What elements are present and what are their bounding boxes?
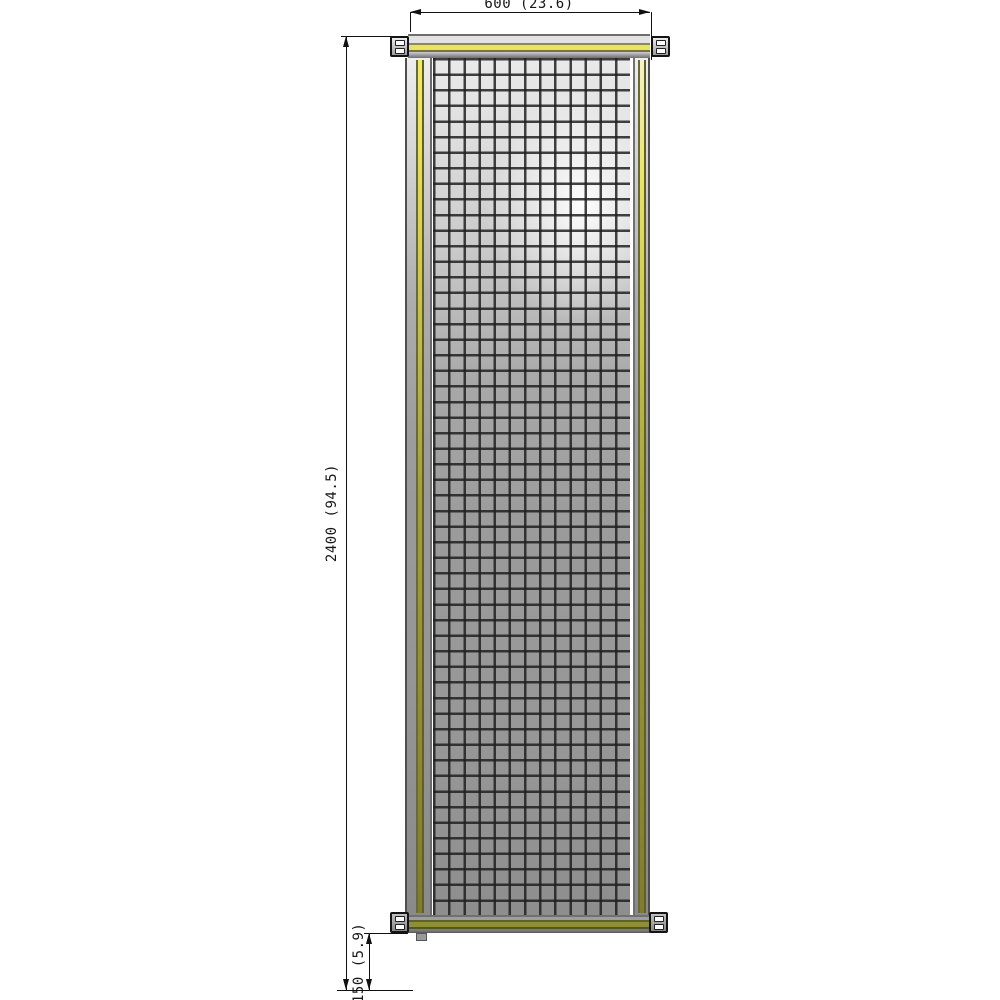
dim-height-arrow-bottom — [343, 979, 349, 990]
left-upright-yellow-stripe — [416, 60, 424, 913]
bracket-hole — [395, 924, 405, 930]
bottom-rail-yellow-stripe — [408, 920, 650, 929]
bracket-hole — [654, 924, 664, 930]
dim-width-extension-left — [410, 12, 411, 32]
top-rail-yellow-stripe — [408, 43, 650, 52]
panel-bottom-rail — [408, 915, 650, 933]
mounting-bracket-bottom-left — [390, 912, 409, 933]
dim-width-extension-right — [651, 12, 652, 60]
dim-clearance-arrow-bottom — [366, 979, 372, 990]
mounting-bracket-top-right — [651, 36, 670, 57]
technical-drawing-canvas: 600 (23.6) 2400 (94.5) 150 (5.9) — [0, 0, 1000, 1000]
dim-height-arrow-top — [343, 36, 349, 47]
dim-width-label: 600 (23.6) — [474, 0, 584, 11]
dim-clearance-label: 150 (5.9) — [351, 923, 367, 1000]
bracket-hole — [395, 40, 405, 46]
bracket-hole — [395, 48, 405, 54]
mounting-bracket-top-left — [390, 36, 409, 57]
dim-height-line — [346, 36, 347, 990]
panel-left-upright — [405, 58, 432, 915]
dim-width-line — [410, 12, 650, 13]
wire-mesh-infill — [433, 58, 630, 915]
panel-right-upright — [633, 58, 650, 915]
dim-height-label: 2400 (94.5) — [324, 458, 340, 568]
bracket-hole — [656, 48, 666, 54]
bracket-hole — [654, 916, 664, 922]
bracket-hole — [656, 40, 666, 46]
right-upright-yellow-stripe — [638, 60, 646, 913]
dim-clearance-extension — [364, 933, 408, 934]
dim-width-arrow-right — [639, 9, 650, 15]
dim-width-arrow-left — [410, 9, 421, 15]
bracket-hole — [395, 916, 405, 922]
panel-top-rail — [408, 34, 650, 58]
floor-baseline — [337, 990, 413, 991]
panel-foot-tab — [416, 933, 427, 941]
mounting-bracket-bottom-right — [649, 912, 668, 933]
dim-clearance-arrow-top — [366, 933, 372, 944]
